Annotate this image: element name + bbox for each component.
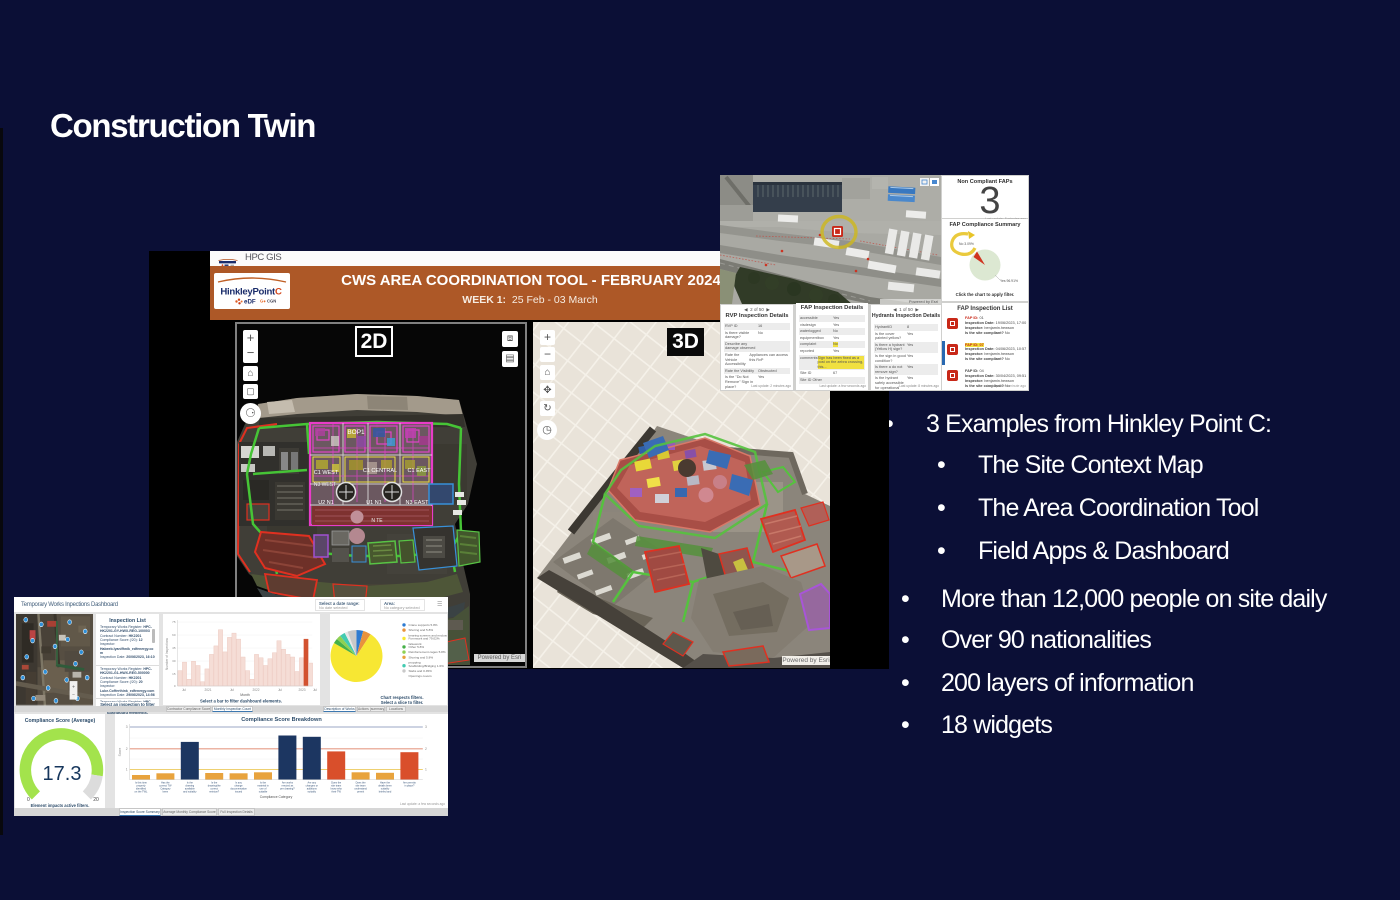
- svg-text:Jul: Jul: [278, 688, 282, 692]
- svg-text:Shoring and 5.8%: Shoring and 5.8%: [408, 628, 433, 632]
- svg-text:Crane supports 5.8%: Crane supports 5.8%: [408, 623, 437, 627]
- svg-text:2022: 2022: [252, 688, 259, 692]
- svg-text:1: 1: [425, 767, 427, 771]
- svg-text:17.3: 17.3: [43, 763, 82, 785]
- svg-text:60: 60: [172, 633, 176, 637]
- svg-text:Jul: Jul: [182, 688, 186, 692]
- svg-text:Shoring and 5.8%: Shoring and 5.8%: [408, 655, 433, 659]
- svg-text:BOP1: BOP1: [347, 429, 365, 436]
- svg-text:suitably: suitably: [308, 791, 317, 794]
- svg-text:Month: Month: [240, 693, 250, 697]
- svg-text:U1 N1: U1 N1: [366, 500, 382, 506]
- svg-text:briefed and: briefed and: [379, 791, 392, 794]
- svg-text:Jul: Jul: [230, 688, 234, 692]
- svg-text:45: 45: [172, 646, 176, 650]
- svg-text:Formwork and 79.02%: Formwork and 79.02%: [408, 637, 439, 641]
- svg-text:2021: 2021: [204, 688, 211, 692]
- svg-text:Select a bar to filter dashboa: Select a bar to filter dashboard element…: [200, 699, 282, 704]
- svg-text:+: +: [72, 684, 75, 690]
- svg-text:Score: Score: [118, 748, 122, 757]
- svg-text:1: 1: [126, 767, 128, 771]
- svg-text:permit: permit: [357, 791, 364, 794]
- svg-text:suitable: suitable: [259, 791, 268, 794]
- svg-text:3: 3: [425, 725, 427, 729]
- svg-text:2: 2: [425, 747, 427, 751]
- svg-text:issued: issued: [235, 791, 243, 794]
- svg-text:Yes 96.91%: Yes 96.91%: [1000, 279, 1018, 283]
- svg-text:3: 3: [126, 725, 128, 729]
- svg-text:2: 2: [126, 747, 128, 751]
- svg-text:Scaffolding/Bridging 1.6%: Scaffolding/Bridging 1.6%: [408, 664, 444, 668]
- svg-text:Select a slice to filter.: Select a slice to filter.: [381, 700, 424, 705]
- svg-text:Slabs and 0.45%: Slabs and 0.45%: [408, 669, 432, 673]
- svg-text:on the TWL: on the TWL: [135, 791, 148, 794]
- svg-text:C1 WEST: C1 WEST: [314, 470, 339, 476]
- svg-text:−: −: [72, 692, 75, 698]
- svg-text:Openings covers: Openings covers: [408, 674, 432, 678]
- svg-text:revision?: revision?: [209, 791, 220, 794]
- svg-text:U2 N1: U2 N1: [318, 500, 334, 506]
- svg-text:N3 EAST: N3 EAST: [406, 500, 430, 506]
- svg-text:C1 EAST: C1 EAST: [408, 468, 432, 474]
- svg-text:N3 WEST: N3 WEST: [314, 482, 336, 488]
- svg-text:75: 75: [172, 620, 176, 624]
- svg-text:Reinforcement cages 5.8%: Reinforcement cages 5.8%: [408, 650, 445, 654]
- svg-text:Jul: Jul: [313, 688, 317, 692]
- svg-text:and suitably: and suitably: [183, 791, 197, 794]
- svg-text:N TE: N TE: [371, 518, 383, 524]
- svg-text:Powered by Esri: Powered by Esri: [909, 299, 938, 304]
- svg-text:30: 30: [172, 659, 176, 663]
- svg-text:Last update: a few seconds ago: Last update: a few seconds ago: [400, 802, 445, 806]
- svg-text:15: 15: [172, 672, 176, 676]
- svg-text:per drawing?: per drawing?: [280, 788, 295, 791]
- svg-text:2023: 2023: [298, 688, 305, 692]
- svg-text:been: been: [163, 791, 169, 794]
- svg-text:Number of Inspections: Number of Inspections: [165, 638, 169, 670]
- svg-text:in place?: in place?: [404, 785, 415, 788]
- svg-text:C1 CENTRAL: C1 CENTRAL: [363, 468, 397, 474]
- svg-text:No 3.09%: No 3.09%: [959, 242, 974, 246]
- svg-text:0: 0: [174, 684, 176, 688]
- svg-text:Compliance Category: Compliance Category: [260, 795, 293, 799]
- svg-text:Other 5.8%: Other 5.8%: [408, 645, 424, 649]
- svg-text:their TW: their TW: [331, 791, 341, 794]
